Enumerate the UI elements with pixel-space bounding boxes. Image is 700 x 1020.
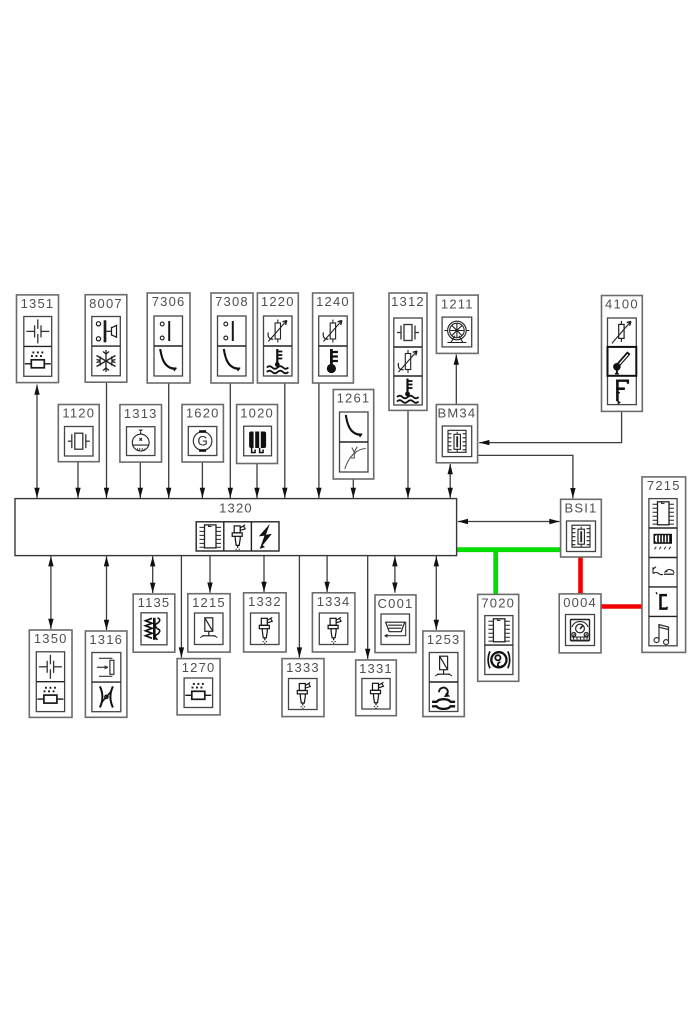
svg-text:C001: C001: [378, 596, 414, 611]
svg-text:1331: 1331: [359, 661, 393, 676]
svg-text:1350: 1350: [34, 631, 68, 646]
svg-text:1253: 1253: [427, 632, 461, 647]
svg-text:1320: 1320: [219, 500, 253, 515]
svg-text:0004: 0004: [563, 595, 597, 610]
svg-text:1334: 1334: [317, 594, 351, 609]
svg-text:1211: 1211: [441, 296, 474, 311]
svg-text:1316: 1316: [89, 632, 123, 647]
svg-text:7308: 7308: [215, 294, 249, 309]
svg-text:4100: 4100: [605, 297, 639, 312]
svg-text:1351: 1351: [21, 296, 55, 311]
svg-text:8007: 8007: [89, 296, 123, 311]
svg-text:1313: 1313: [124, 406, 158, 421]
svg-text:1261: 1261: [337, 391, 371, 406]
svg-text:1215: 1215: [192, 595, 226, 610]
svg-text:1620: 1620: [186, 406, 220, 421]
svg-text:1270: 1270: [182, 660, 216, 675]
svg-text:7215: 7215: [647, 478, 681, 493]
svg-text:1135: 1135: [138, 595, 171, 610]
svg-text:1332: 1332: [248, 594, 282, 609]
svg-text:1240: 1240: [316, 294, 350, 309]
svg-text:BSI1: BSI1: [565, 501, 598, 516]
svg-text:7020: 7020: [481, 596, 515, 611]
svg-text:1333: 1333: [286, 660, 320, 675]
svg-text:1312: 1312: [391, 294, 425, 309]
svg-text:BM34: BM34: [438, 406, 477, 421]
svg-text:7306: 7306: [152, 294, 186, 309]
svg-text:1120: 1120: [62, 406, 95, 421]
svg-text:1220: 1220: [261, 294, 295, 309]
svg-text:1020: 1020: [240, 406, 274, 421]
